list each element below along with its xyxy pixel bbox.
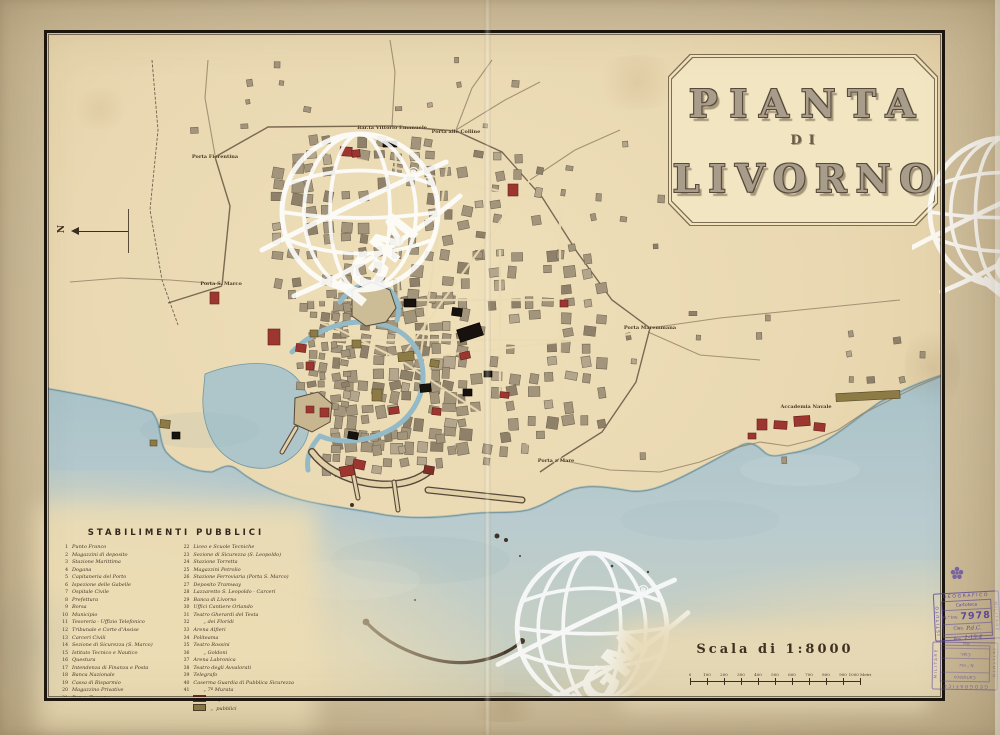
scale-tick-label: 1000 Metri bbox=[849, 672, 872, 677]
scan-edge bbox=[995, 0, 1000, 735]
legend-item: 34Politeama bbox=[179, 635, 294, 643]
legend-item: 3Stazione Marittima bbox=[58, 559, 171, 567]
legend-item: 12Tribunale e Corte d'Assise bbox=[58, 627, 171, 635]
stamp-flower-ornament bbox=[950, 566, 964, 580]
scale-tick-label: 700 bbox=[805, 672, 813, 677]
legend-column-left: 1Punto Franco2Magazzini di deposito3Staz… bbox=[58, 544, 171, 713]
map-label: Bar.ta Vittorio Emanuele bbox=[357, 125, 427, 131]
scale-tick bbox=[843, 678, 844, 685]
legend-item: 6Ispezione delle Gabelle bbox=[58, 582, 171, 590]
map-label: Porta Fiorentina bbox=[192, 154, 238, 160]
legend-item: 17Intendenza di Finanza e Posta bbox=[58, 665, 171, 673]
scale-tick bbox=[724, 678, 725, 685]
map-label: Accademia Navale bbox=[780, 404, 831, 410]
legend-item: 31Teatro Gherardi del Testa bbox=[179, 612, 294, 620]
legend-item: 9Borsa bbox=[58, 604, 171, 612]
title-cartouche: PIANTA DI LIVORNO bbox=[668, 54, 938, 226]
map-title-line2: DI bbox=[790, 133, 821, 148]
scale-tick bbox=[707, 678, 708, 685]
stamp-clas-label: Clas. bbox=[953, 626, 964, 632]
svg-text:®: ® bbox=[406, 164, 421, 182]
legend-item: 36„ Goldoni bbox=[179, 650, 294, 658]
legend-swatch: „ pubblici bbox=[179, 704, 294, 713]
legend-swatch: Edifizi militari bbox=[179, 695, 294, 704]
scale-tick bbox=[809, 678, 810, 685]
scale-bar: 01002003004005006007008009001000 Metri bbox=[690, 673, 860, 685]
legend-item: 5Capitaneria del Porto bbox=[58, 574, 171, 582]
scale-caption: Scala di 1:8000 bbox=[640, 642, 910, 657]
scale-tick-label: 0 bbox=[689, 672, 692, 677]
legend-item: 27Deposito Tramway bbox=[179, 582, 294, 590]
stamp-clas-value: P.d.C. bbox=[966, 625, 982, 632]
legend-item: 39Telegrafo bbox=[179, 672, 294, 680]
legend-item: 21Banca Toscana bbox=[58, 695, 171, 703]
svg-text:®: ® bbox=[636, 583, 650, 599]
igm-archive-stamp-inverted: GEOGRAFICO ISTITUTO MILITARE Cartoteca N… bbox=[932, 641, 999, 690]
scale-panel: Scala di 1:8000 010020030040050060070080… bbox=[640, 642, 910, 694]
legend-item: 8Prefettura bbox=[58, 597, 171, 605]
scale-tick bbox=[775, 678, 776, 685]
legend-item: 2Magazzini di deposito bbox=[58, 552, 171, 560]
legend-item: 20Magazzino Privative bbox=[58, 687, 171, 695]
scale-tick-label: 100 bbox=[703, 672, 711, 677]
legend-item: 23Sezione di Sicurezza (S. Leopoldo) bbox=[179, 552, 294, 560]
igm-watermark-right: IGM® bbox=[912, 100, 1000, 324]
legend-column-right: 22Liceo e Scuole Tecniche23Sezione di Si… bbox=[179, 544, 294, 713]
scale-tick-label: 600 bbox=[788, 672, 796, 677]
legend-item: 38Teatro degli Avvalorati bbox=[179, 665, 294, 673]
stamp-inv-label: N.° Inv. bbox=[943, 614, 959, 620]
scanned-map-page: IGM®IGM® Porta FiorentinaBar.ta Vittorio… bbox=[0, 0, 1000, 735]
legend-item: 29Banca di Livorno bbox=[179, 597, 294, 605]
scale-tick-label: 300 bbox=[737, 672, 745, 677]
map-label: Porta S. Marco bbox=[200, 281, 242, 287]
legend-item: 11Tesoreria - Uffizio Telefonico bbox=[58, 619, 171, 627]
legend-item: 15Istituto Tecnico e Nautico bbox=[58, 650, 171, 658]
legend-item: 28Lazzaretto S. Leopoldo - Carceri bbox=[179, 589, 294, 597]
map-label: Porta a Mare bbox=[538, 458, 574, 464]
scale-tick bbox=[741, 678, 742, 685]
scale-tick-label: 800 bbox=[822, 672, 830, 677]
railway bbox=[150, 60, 178, 325]
legend-item: 35Teatro Rossini bbox=[179, 642, 294, 650]
legend-item: 7Ospitale Civile bbox=[58, 589, 171, 597]
legend-item: 24Stazione Torretta bbox=[179, 559, 294, 567]
legend-item: 1Punto Franco bbox=[58, 544, 171, 552]
legend-item: 40Caserma Guardia di Pubblica Sicurezza bbox=[179, 680, 294, 688]
legend-item: 30Uffici Cantiere Orlando bbox=[179, 604, 294, 612]
legend-item: 33Arena Alfieri bbox=[179, 627, 294, 635]
scale-tick bbox=[758, 678, 759, 685]
legend-item: 18Banca Nazionale bbox=[58, 672, 171, 680]
map-label: Porta Maremmana bbox=[624, 325, 676, 331]
legend-item: 4Dogana bbox=[58, 567, 171, 575]
scale-tick bbox=[690, 678, 691, 685]
legend-item: 19Cassa di Risparmio bbox=[58, 680, 171, 688]
legend-panel: STABILIMENTI PUBBLICI 1Punto Franco2Maga… bbox=[58, 528, 294, 713]
igm-archive-stamp: GEOGRAFICO ISTITUTO MILITARE Cartoteca N… bbox=[933, 590, 1000, 641]
legend-item: 41„ 7ª Murata bbox=[179, 687, 294, 695]
map-label: Porta alle Colline bbox=[432, 129, 481, 135]
stamp-inv-number: 7978 bbox=[960, 610, 991, 623]
map-title-line3: LIVORNO bbox=[673, 160, 942, 198]
scale-tick bbox=[826, 678, 827, 685]
legend-item: 16Questura bbox=[58, 657, 171, 665]
scale-tick bbox=[792, 678, 793, 685]
legend-title: STABILIMENTI PUBBLICI bbox=[58, 528, 294, 538]
scale-tick-label: 500 bbox=[771, 672, 779, 677]
scale-tick bbox=[860, 678, 861, 685]
legend-item: 14Sezione di Sicurezza (S. Marco) bbox=[58, 642, 171, 650]
legend-item: 37Arena Labronica bbox=[179, 657, 294, 665]
legend-item: 10Municipio bbox=[58, 612, 171, 620]
legend-item: 26Stazione Ferroviaria (Porta S. Marco) bbox=[179, 574, 294, 582]
scale-tick-label: 200 bbox=[720, 672, 728, 677]
scale-tick-label: 400 bbox=[754, 672, 762, 677]
map-title-line1: PIANTA bbox=[689, 85, 927, 123]
scale-tick-label: 900 bbox=[839, 672, 847, 677]
legend-item: 22Liceo e Scuole Tecniche bbox=[179, 544, 294, 552]
legend-item: 13Carceri Civili bbox=[58, 635, 171, 643]
legend-item: 32„ dei Floridi bbox=[179, 619, 294, 627]
